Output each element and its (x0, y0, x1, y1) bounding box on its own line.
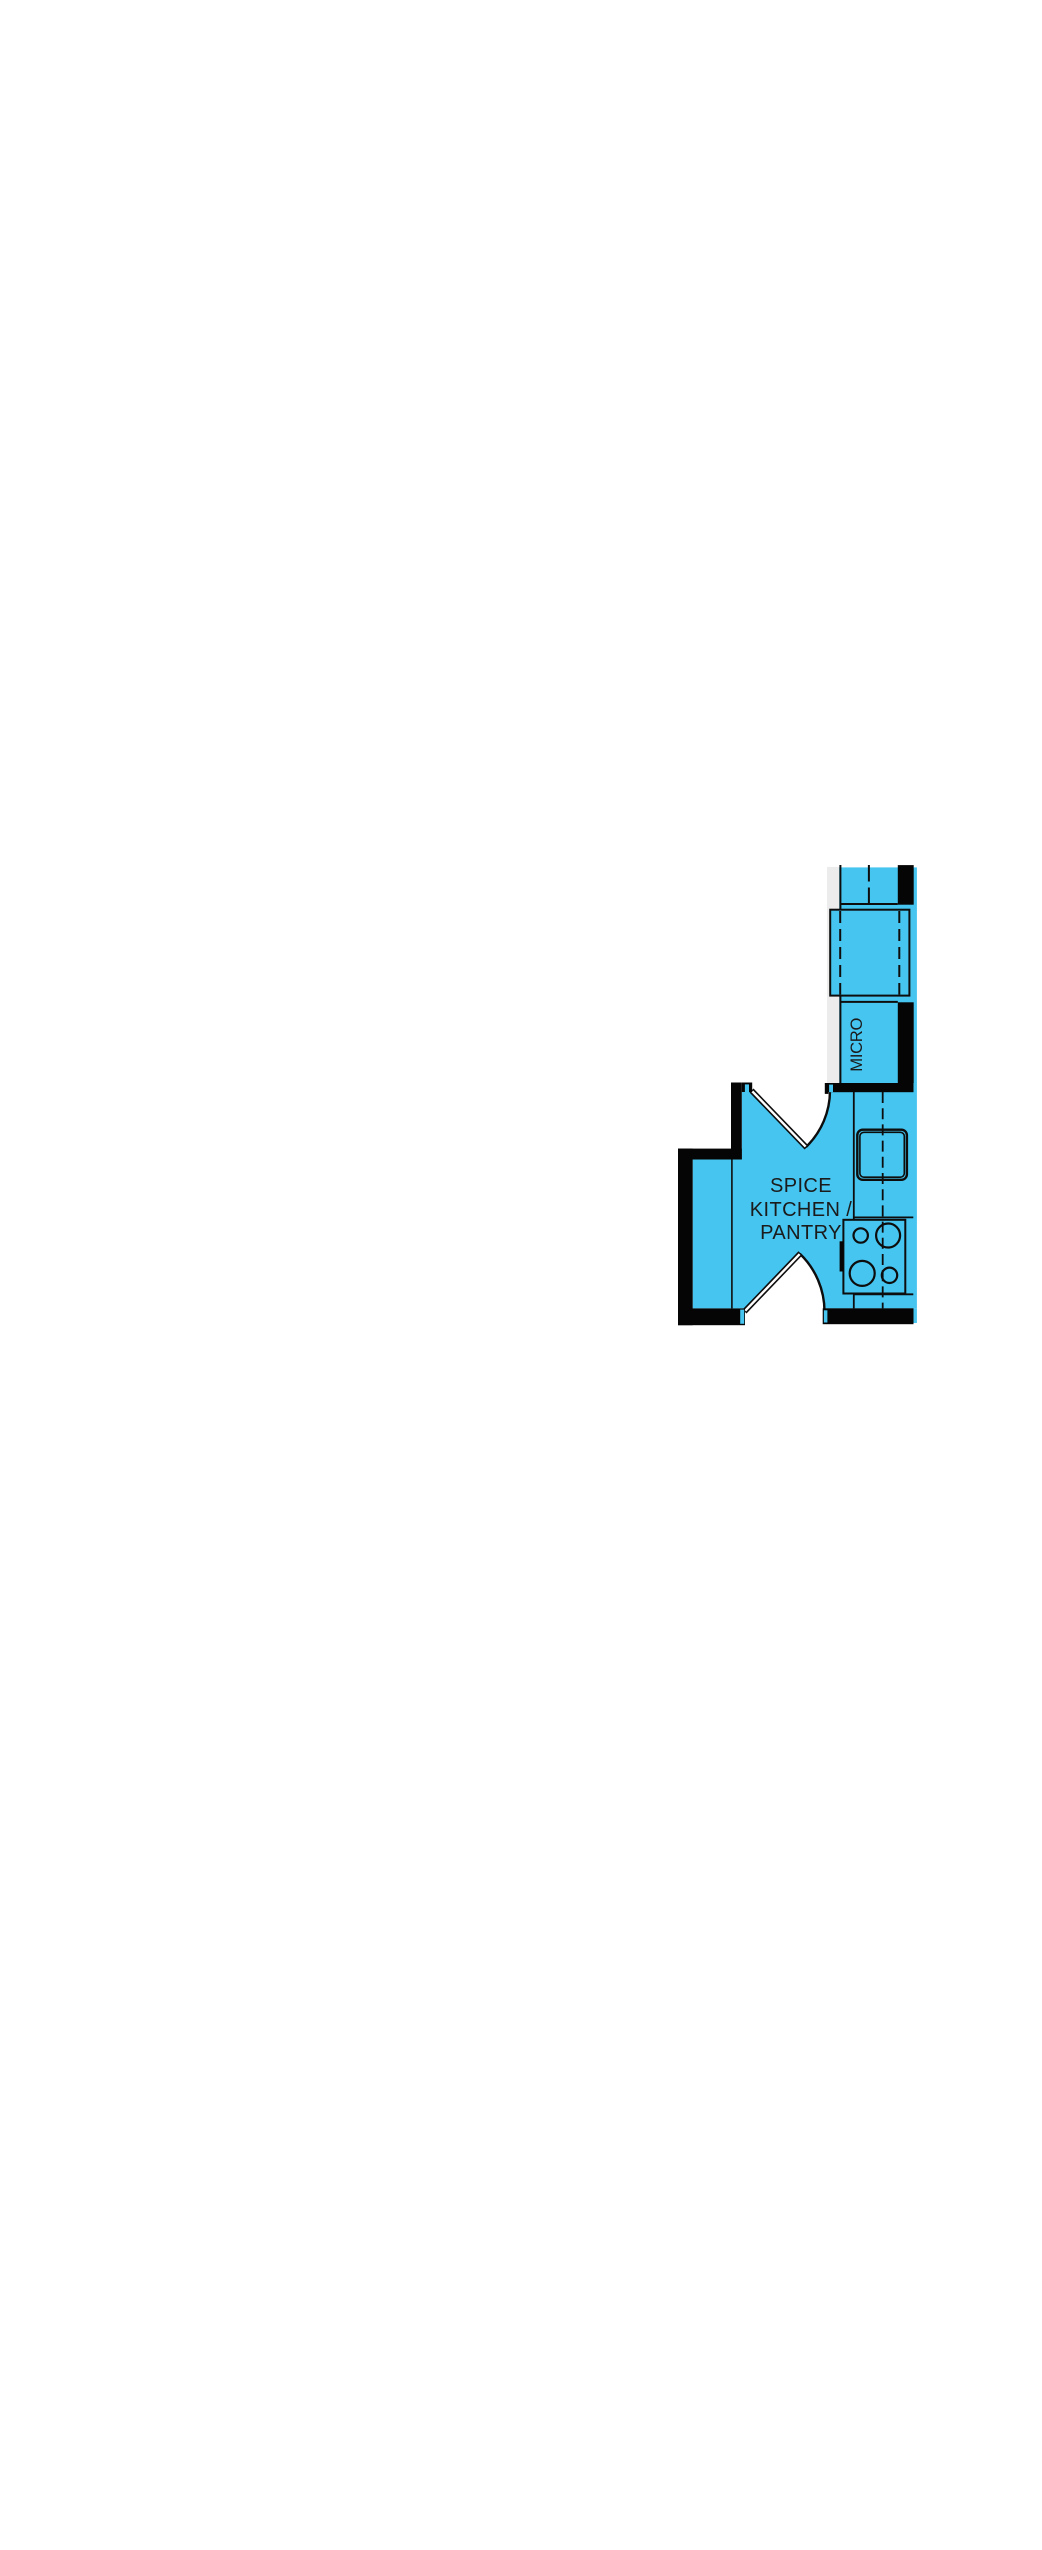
svg-text:SPICE: SPICE (770, 1175, 832, 1197)
svg-text:MICRO: MICRO (847, 1018, 866, 1072)
svg-text:PANTRY: PANTRY (760, 1222, 842, 1244)
svg-text:KITCHEN /: KITCHEN / (750, 1199, 853, 1221)
